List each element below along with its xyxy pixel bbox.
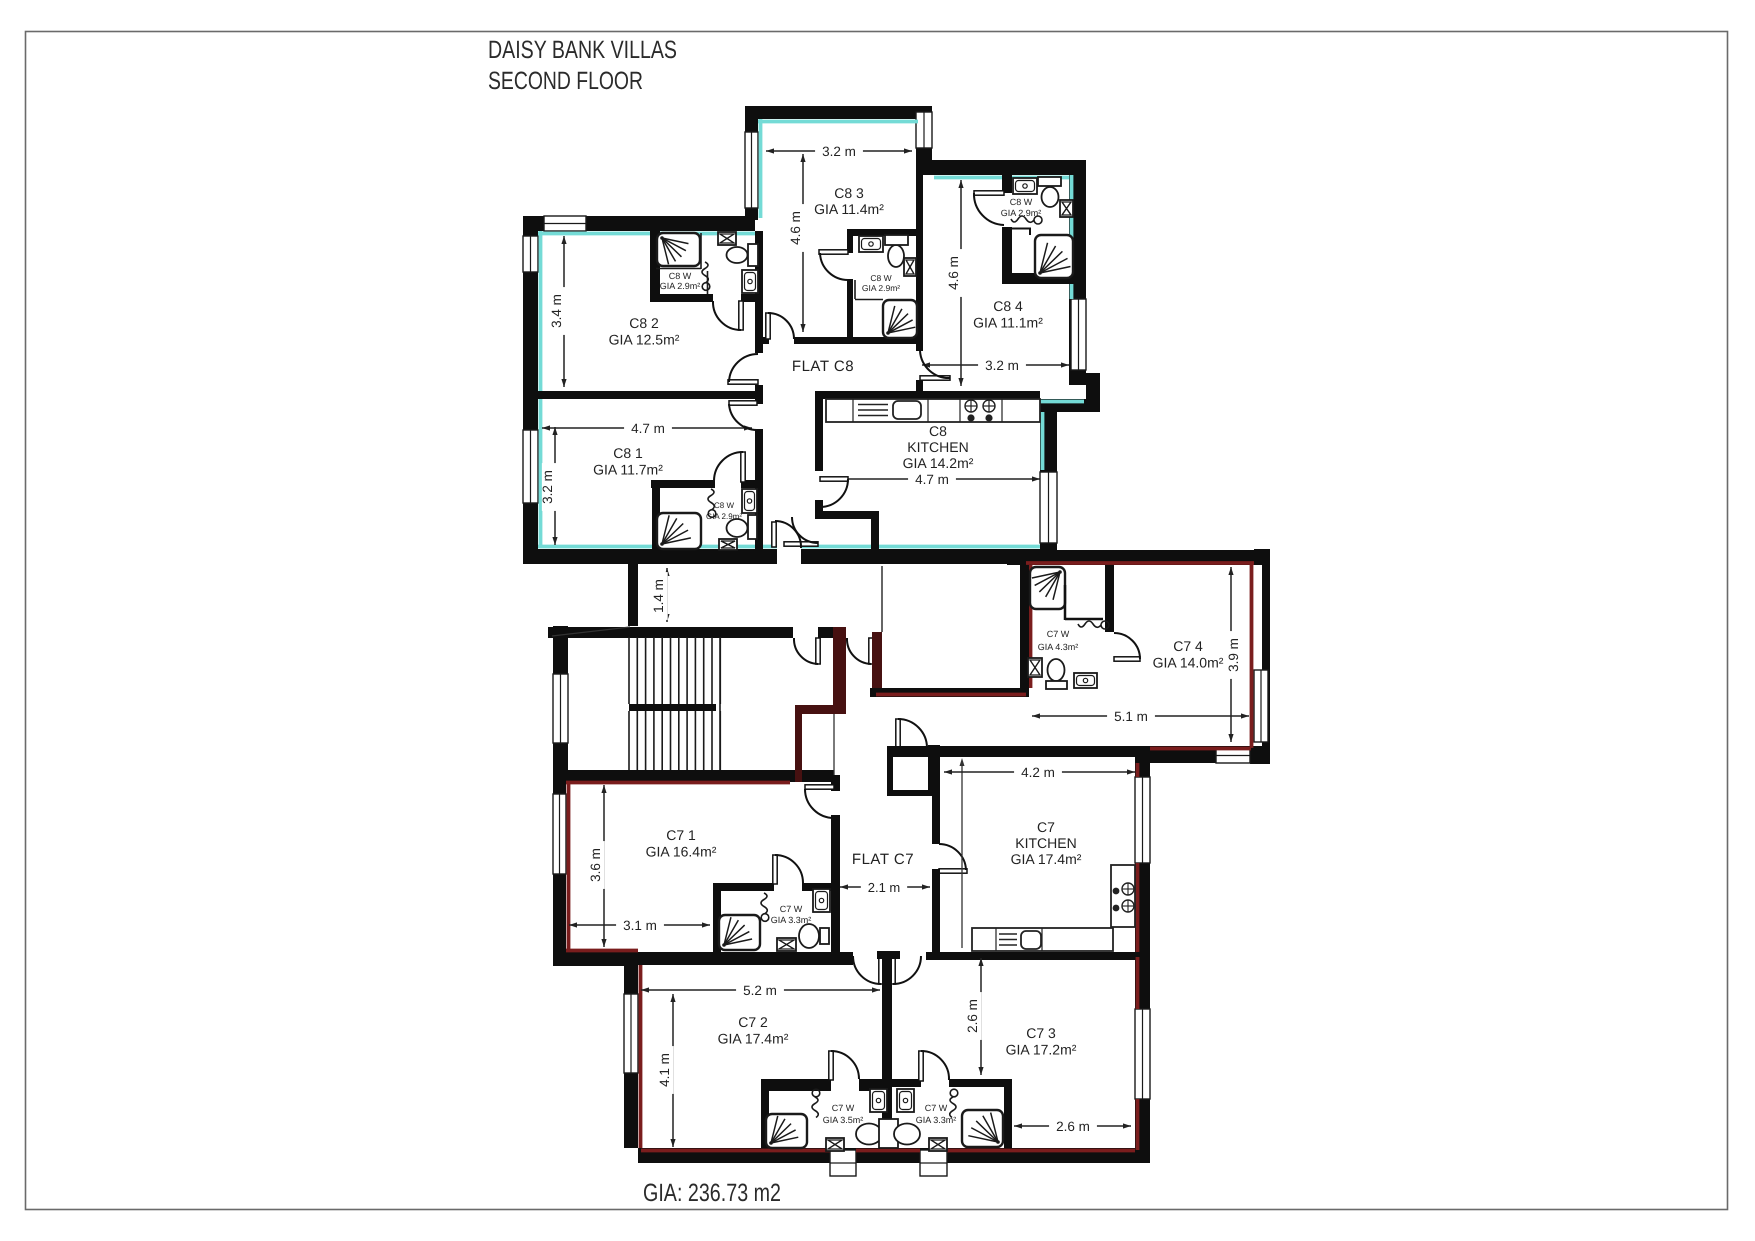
svg-text:GIA 4.3m²: GIA 4.3m² <box>1038 642 1079 652</box>
svg-text:GIA 2.9m²: GIA 2.9m² <box>862 283 900 293</box>
svg-text:C7: C7 <box>1037 819 1055 835</box>
svg-text:C7 W: C7 W <box>925 1103 948 1113</box>
svg-text:4.6 m: 4.6 m <box>788 211 803 245</box>
svg-text:GIA 11.4m²: GIA 11.4m² <box>814 201 884 217</box>
svg-text:4.1 m: 4.1 m <box>657 1053 672 1087</box>
svg-text:GIA 11.1m²: GIA 11.1m² <box>973 315 1043 331</box>
svg-text:3.2 m: 3.2 m <box>822 144 856 159</box>
svg-text:3.2 m: 3.2 m <box>540 470 555 504</box>
svg-text:GIA 12.5m²: GIA 12.5m² <box>609 332 680 348</box>
svg-text:C8 1: C8 1 <box>613 445 643 461</box>
svg-text:4.7 m: 4.7 m <box>631 421 665 436</box>
svg-text:3.1 m: 3.1 m <box>623 918 657 933</box>
svg-text:C7 2: C7 2 <box>738 1014 768 1030</box>
svg-text:GIA 17.4m²: GIA 17.4m² <box>718 1031 789 1047</box>
svg-text:C7 W: C7 W <box>780 904 803 914</box>
svg-text:C8 3: C8 3 <box>834 185 864 201</box>
svg-text:GIA 16.4m²: GIA 16.4m² <box>646 844 717 860</box>
svg-text:C8 W: C8 W <box>870 273 891 283</box>
svg-text:C7 1: C7 1 <box>666 827 696 843</box>
svg-text:GIA 14.0m²: GIA 14.0m² <box>1153 655 1224 671</box>
svg-text:2.1 m: 2.1 m <box>868 880 901 895</box>
svg-text:FLAT C7: FLAT C7 <box>852 851 914 868</box>
svg-text:2.6 m: 2.6 m <box>965 999 980 1033</box>
svg-text:4.6 m: 4.6 m <box>946 256 961 290</box>
svg-text:GIA 11.7m²: GIA 11.7m² <box>593 462 663 478</box>
svg-text:3.9 m: 3.9 m <box>1226 638 1241 672</box>
svg-text:DAISY BANK VILLAS: DAISY BANK VILLAS <box>488 36 677 64</box>
svg-text:GIA 17.4m²: GIA 17.4m² <box>1011 851 1082 867</box>
svg-text:C8 2: C8 2 <box>629 315 659 331</box>
svg-text:4.7 m: 4.7 m <box>915 472 949 487</box>
svg-text:C8 W: C8 W <box>714 501 734 510</box>
svg-text:C8 W: C8 W <box>1010 197 1033 207</box>
svg-text:GIA 14.2m²: GIA 14.2m² <box>903 455 974 471</box>
svg-text:C7 W: C7 W <box>1047 629 1070 639</box>
svg-text:4.2 m: 4.2 m <box>1021 765 1055 780</box>
svg-text:C8: C8 <box>929 423 947 439</box>
svg-text:GIA 3.3m²: GIA 3.3m² <box>916 1115 957 1125</box>
svg-text:GIA 3.5m²: GIA 3.5m² <box>823 1115 864 1125</box>
svg-text:5.1 m: 5.1 m <box>1114 709 1148 724</box>
svg-text:3.4 m: 3.4 m <box>549 294 564 328</box>
svg-text:5.2 m: 5.2 m <box>743 983 777 998</box>
svg-text:KITCHEN: KITCHEN <box>907 439 968 455</box>
svg-text:SECOND FLOOR: SECOND FLOOR <box>488 67 643 95</box>
svg-text:C8 W: C8 W <box>669 271 692 281</box>
svg-text:FLAT C8: FLAT C8 <box>792 358 854 375</box>
svg-text:GIA 2.9m²: GIA 2.9m² <box>706 512 742 521</box>
svg-text:2.6 m: 2.6 m <box>1056 1119 1090 1134</box>
svg-text:GIA 2.9m²: GIA 2.9m² <box>660 281 701 291</box>
svg-text:C7 W: C7 W <box>832 1103 855 1113</box>
svg-text:C7 4: C7 4 <box>1173 638 1203 654</box>
svg-text:3.2 m: 3.2 m <box>985 358 1019 373</box>
svg-text:3.6 m: 3.6 m <box>588 848 603 882</box>
svg-text:1.4 m: 1.4 m <box>651 579 666 613</box>
svg-text:KITCHEN: KITCHEN <box>1015 835 1076 851</box>
svg-text:GIA 2.9m²: GIA 2.9m² <box>1001 208 1042 218</box>
svg-text:GIA 17.2m²: GIA 17.2m² <box>1006 1042 1077 1058</box>
svg-text:C7 3: C7 3 <box>1026 1025 1056 1041</box>
svg-text:C8 4: C8 4 <box>993 298 1023 314</box>
svg-text:GIA: 236.73 m2: GIA: 236.73 m2 <box>643 1179 781 1207</box>
svg-text:GIA 3.3m²: GIA 3.3m² <box>771 915 812 925</box>
